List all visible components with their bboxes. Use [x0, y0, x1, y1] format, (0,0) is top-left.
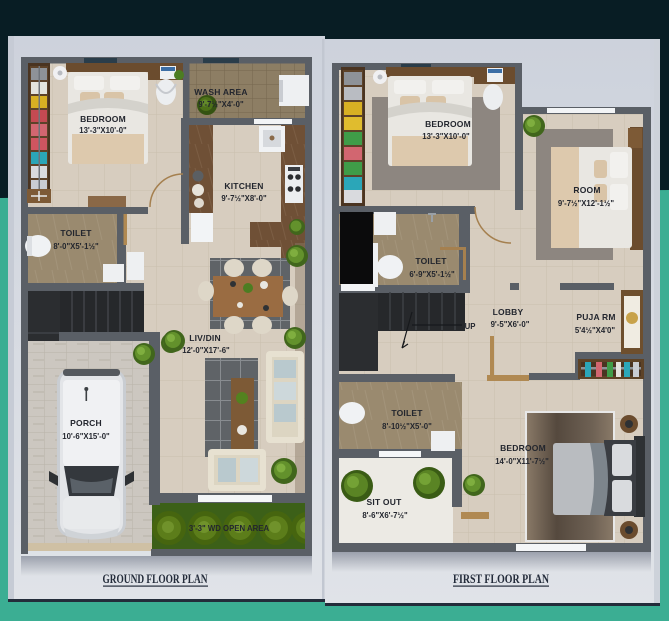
svg-text:BEDROOM: BEDROOM [80, 114, 126, 124]
svg-text:12'-0"X17'-6": 12'-0"X17'-6" [182, 346, 230, 355]
svg-text:13'-3"X10'-0": 13'-3"X10'-0" [79, 126, 127, 135]
svg-text:FIRST FLOOR PLAN: FIRST FLOOR PLAN [453, 572, 549, 586]
svg-text:BEDROOM: BEDROOM [425, 119, 471, 129]
svg-text:GROUND FLOOR PLAN: GROUND FLOOR PLAN [103, 572, 208, 586]
svg-text:LIV/DIN: LIV/DIN [189, 333, 221, 343]
svg-text:8'-0"X5'-1½": 8'-0"X5'-1½" [53, 242, 99, 251]
svg-text:3'-3" WD OPEN AREA: 3'-3" WD OPEN AREA [189, 524, 270, 533]
svg-text:5'4½"X4'0": 5'4½"X4'0" [575, 326, 615, 335]
svg-text:6'-9"X5'-1½": 6'-9"X5'-1½" [409, 270, 455, 279]
svg-text:SIT OUT: SIT OUT [367, 497, 403, 507]
svg-text:10'-6"X15'-0": 10'-6"X15'-0" [62, 432, 110, 441]
svg-text:13'-3"X10'-0": 13'-3"X10'-0" [422, 132, 470, 141]
svg-text:9'-7½"X8'-0": 9'-7½"X8'-0" [221, 194, 267, 203]
svg-text:TOILET: TOILET [415, 256, 447, 266]
svg-text:UP: UP [465, 322, 476, 331]
svg-text:9'-5"X6'-0": 9'-5"X6'-0" [491, 320, 530, 329]
svg-text:8'-10½"X5'-0": 8'-10½"X5'-0" [382, 422, 432, 431]
svg-text:WASH AREA: WASH AREA [194, 87, 247, 97]
svg-text:8'-6"X6'-7½": 8'-6"X6'-7½" [362, 511, 408, 520]
svg-text:PUJA RM: PUJA RM [576, 312, 615, 322]
svg-text:9'-7½"X12'-1½": 9'-7½"X12'-1½" [558, 199, 614, 208]
svg-text:LOBBY: LOBBY [493, 307, 524, 317]
svg-text:TOILET: TOILET [391, 408, 423, 418]
svg-text:BEDROOM: BEDROOM [500, 443, 546, 453]
svg-text:TOILET: TOILET [60, 228, 92, 238]
svg-text:14'-0"X11'-7½": 14'-0"X11'-7½" [495, 457, 549, 466]
svg-text:ROOM: ROOM [573, 185, 600, 195]
svg-text:PORCH: PORCH [70, 418, 102, 428]
svg-text:KITCHEN: KITCHEN [224, 181, 263, 191]
svg-text:9'-7½"X4'-0": 9'-7½"X4'-0" [198, 100, 244, 109]
